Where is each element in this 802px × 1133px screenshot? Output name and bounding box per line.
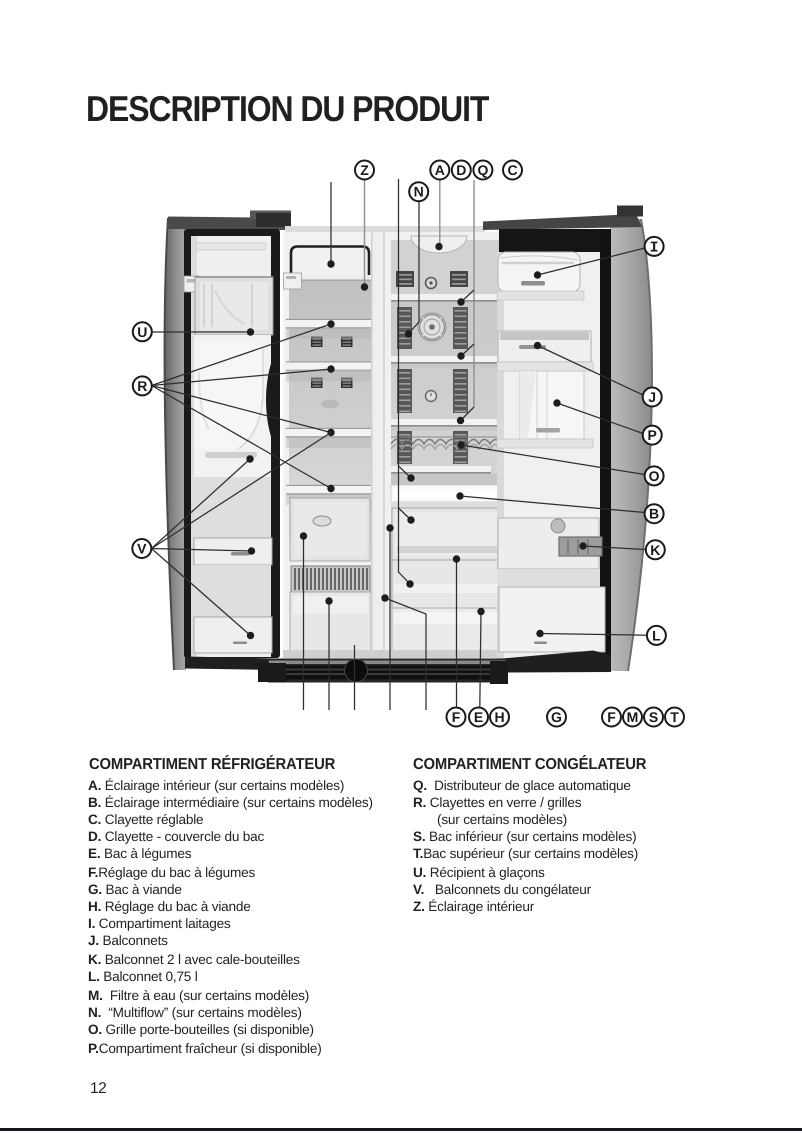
svg-text:Z: Z	[360, 162, 369, 178]
svg-text:I: I	[650, 239, 659, 256]
svg-text:L: L	[652, 627, 661, 643]
svg-text:R: R	[137, 378, 147, 394]
svg-text:V: V	[137, 541, 147, 557]
svg-text:K: K	[650, 542, 660, 558]
svg-text:E: E	[474, 709, 483, 725]
svg-text:H: H	[494, 709, 504, 725]
svg-text:N: N	[414, 184, 424, 200]
svg-text:F: F	[452, 709, 461, 725]
svg-text:G: G	[551, 709, 562, 725]
svg-text:J: J	[648, 389, 656, 405]
svg-text:M: M	[627, 709, 639, 725]
svg-text:F: F	[607, 709, 616, 725]
svg-text:U: U	[137, 324, 147, 340]
svg-text:S: S	[649, 709, 658, 725]
svg-text:B: B	[649, 506, 659, 522]
svg-text:T: T	[670, 709, 679, 725]
svg-text:A: A	[435, 162, 445, 178]
svg-text:P: P	[648, 427, 657, 443]
svg-text:C: C	[507, 162, 517, 178]
svg-text:Q: Q	[477, 162, 488, 178]
svg-text:O: O	[649, 468, 660, 484]
svg-text:D: D	[456, 162, 466, 178]
